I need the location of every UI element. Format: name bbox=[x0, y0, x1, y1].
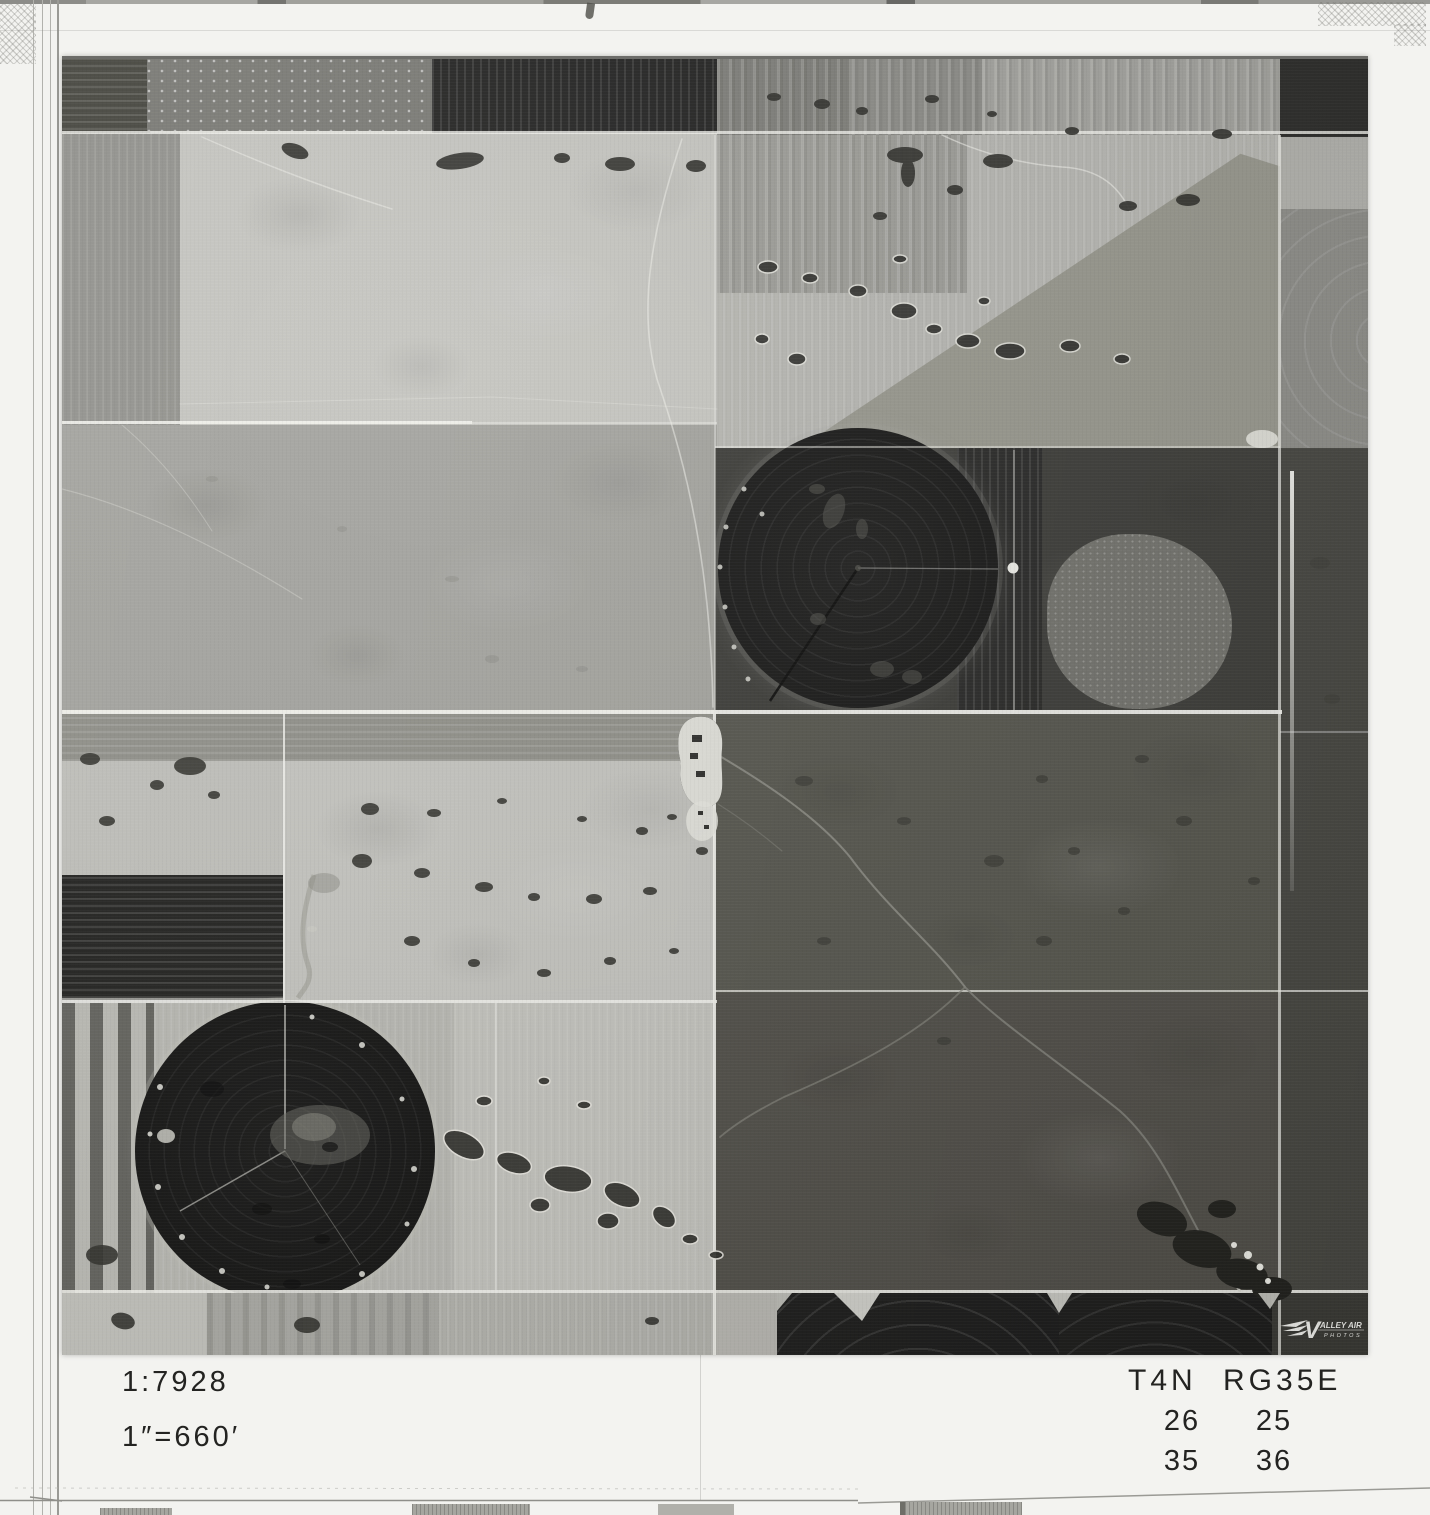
scale-annotations: 1:7928 1″=660′ bbox=[122, 1366, 240, 1454]
film-bar-4 bbox=[900, 1502, 1022, 1515]
right-column-cross-line bbox=[1280, 731, 1368, 733]
section-road-h4 bbox=[715, 990, 1368, 992]
pasture-south bbox=[715, 993, 1280, 1293]
paper-rule-diagonal bbox=[858, 1488, 1430, 1503]
scale-ratio: 1:7928 bbox=[122, 1366, 240, 1399]
section-number: 26 bbox=[1158, 1405, 1206, 1438]
section-road-h1 bbox=[62, 131, 1368, 134]
field-boundary-v-west bbox=[283, 713, 285, 1003]
section-numbers-row-1: 26 25 bbox=[1158, 1405, 1341, 1438]
scan-line-2 bbox=[42, 0, 43, 1515]
field-creek-chain bbox=[454, 1003, 715, 1293]
scan-line-3 bbox=[50, 0, 51, 1515]
field-strip-below-road bbox=[62, 713, 715, 761]
field-bottom-2 bbox=[207, 1293, 439, 1355]
section-road-h2 bbox=[62, 421, 472, 424]
field-dark-striped-nw bbox=[62, 59, 150, 137]
field-right-column-arcs bbox=[1280, 209, 1368, 448]
township-annotations: T4N RG35E 26 25 35 36 bbox=[1128, 1364, 1341, 1478]
aerial-photo: V ALLEY AIR PHOTOS bbox=[62, 56, 1368, 1355]
field-very-dark-top bbox=[432, 59, 717, 135]
field-dark-ne-corner bbox=[1280, 59, 1368, 137]
film-edge-notch bbox=[585, 3, 595, 20]
field-boundary-v-chain bbox=[495, 1003, 497, 1293]
scale-equivalence: 1″=660′ bbox=[122, 1421, 240, 1454]
film-bar-1 bbox=[100, 1508, 172, 1515]
field-top-mid-b bbox=[852, 59, 982, 137]
section-road-v-center-upper bbox=[714, 135, 716, 713]
valley-air-logo-icon: V ALLEY AIR PHOTOS bbox=[1278, 1317, 1366, 1347]
corner-hatch-top-right-b bbox=[1394, 24, 1426, 46]
scan-line-4 bbox=[57, 0, 59, 1515]
section-road-v-center-lower bbox=[713, 713, 716, 1355]
field-ne-subplot bbox=[717, 135, 967, 293]
section-road-h3 bbox=[62, 710, 1282, 714]
pasture-north bbox=[715, 713, 1280, 993]
field-boundary-h2-east bbox=[715, 446, 1280, 448]
section-road-v-east bbox=[1278, 135, 1281, 1355]
paper-faint-rule-bottom-margin bbox=[700, 1355, 701, 1501]
pivot-top-edge-a bbox=[777, 1293, 1059, 1355]
field-light-west-block bbox=[62, 761, 285, 875]
film-bar-2 bbox=[412, 1504, 530, 1515]
field-boundary-v-darkfield bbox=[1013, 450, 1015, 713]
film-bar-3 bbox=[658, 1504, 734, 1515]
field-bottom-1 bbox=[62, 1293, 207, 1355]
field-bottom-3 bbox=[439, 1293, 717, 1355]
logo-name-text: ALLEY AIR bbox=[1319, 1321, 1362, 1330]
field-right-column-top bbox=[1280, 137, 1368, 209]
section-number: 36 bbox=[1250, 1445, 1298, 1478]
field-top-light bbox=[982, 59, 1280, 135]
film-edge-top bbox=[0, 0, 1430, 4]
field-light-pond-belt bbox=[283, 761, 715, 1003]
field-speckled bbox=[147, 59, 435, 131]
paper-faint-rule-top bbox=[0, 30, 1430, 31]
section-number: 25 bbox=[1250, 1405, 1298, 1438]
bright-road-right-column bbox=[1290, 471, 1294, 891]
section-numbers-row-2: 35 36 bbox=[1158, 1445, 1341, 1478]
section-road-h5 bbox=[62, 1000, 717, 1003]
section-road-h2-faint bbox=[472, 422, 717, 424]
scanned-aerial-photo-sheet: V ALLEY AIR PHOTOS 1:7928 1″=660′ T4N RG… bbox=[0, 0, 1430, 1515]
paper-rule-dashed bbox=[15, 1488, 860, 1489]
field-large-gray-west bbox=[62, 425, 717, 713]
scan-line-1 bbox=[33, 0, 34, 1515]
field-west-edge bbox=[62, 133, 182, 425]
center-pivot-field-southwest bbox=[135, 1001, 435, 1301]
field-top-mid-a bbox=[717, 59, 852, 137]
field-black-rectangle bbox=[62, 875, 285, 998]
section-number: 35 bbox=[1158, 1445, 1206, 1478]
pivot-top-edge-b bbox=[1059, 1293, 1272, 1355]
corner-hatch-top-right-a bbox=[1318, 2, 1426, 26]
township-range: T4N RG35E bbox=[1128, 1364, 1341, 1398]
field-bottom-4 bbox=[717, 1293, 777, 1355]
field-large-light-nw bbox=[180, 133, 717, 425]
corner-hatch-top-left bbox=[0, 4, 36, 64]
center-pivot-field-east bbox=[718, 428, 998, 708]
logo-subtext: PHOTOS bbox=[1324, 1333, 1362, 1339]
